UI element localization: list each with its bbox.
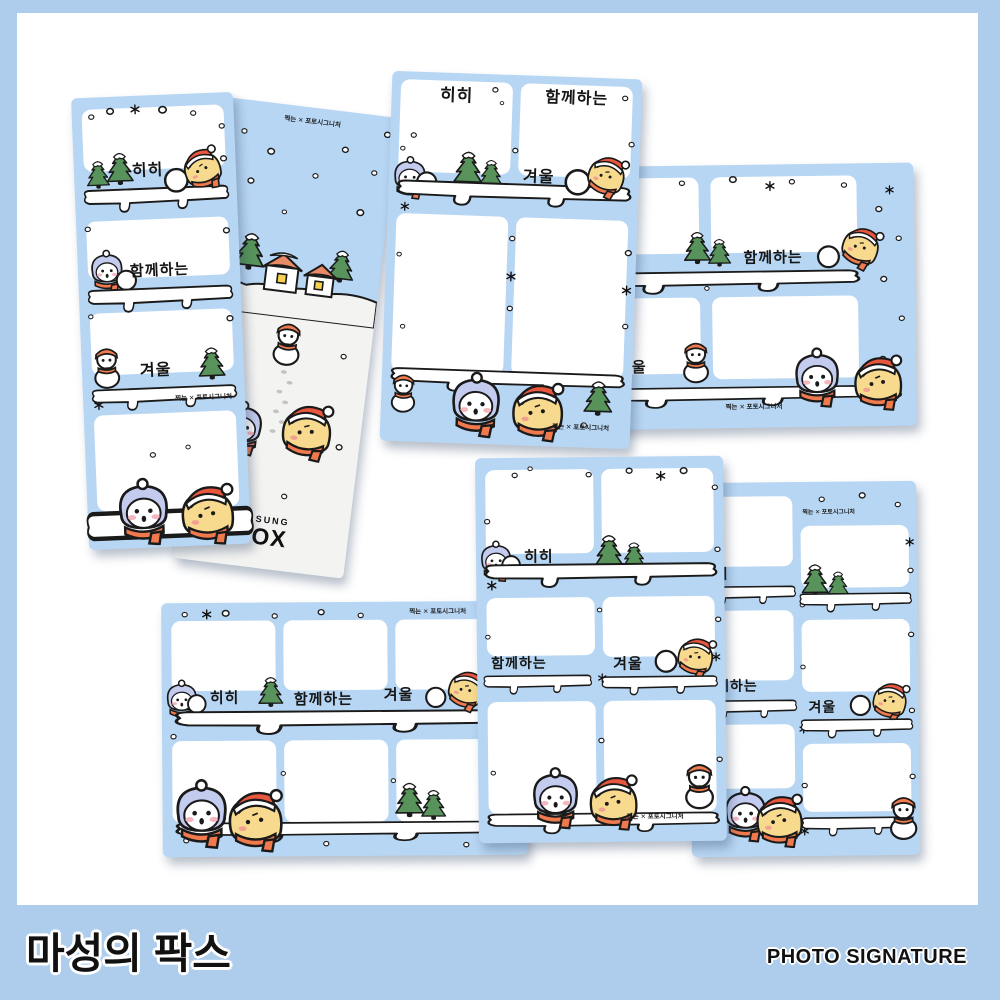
tree-illustration (198, 348, 225, 380)
snow-ledge (484, 675, 592, 694)
frame-card-portrait-6cut: 히히 함께하는 겨울 찍는 ✕ 포토시그니처 (475, 456, 727, 844)
snowflakes (398, 202, 633, 295)
snow-ledge (486, 563, 716, 588)
footer-brand-english: PHOTO SIGNATURE (767, 946, 967, 969)
seal-character (119, 478, 168, 546)
brand-credit-text: 찍는 ✕ 포토시그니처 (726, 404, 783, 411)
snow-ledge (800, 593, 911, 612)
snowball-icon (565, 170, 590, 195)
frame-label-together: 함께하는 (491, 656, 547, 671)
tree-illustration (422, 791, 446, 820)
chick-character (855, 356, 902, 411)
snow-dots (484, 465, 722, 775)
snowman-illustration (94, 349, 119, 389)
frame-label-winter: 겨울 (808, 700, 836, 714)
snow-ledge (391, 368, 624, 397)
brand-credit-text: 찍는 ✕ 포토시그니처 (627, 814, 684, 821)
frame-label-together: 함께하는 (130, 262, 190, 279)
seal-character (796, 348, 838, 407)
snowball-icon (426, 688, 445, 707)
snowman-illustration (684, 343, 708, 382)
chick-character (674, 633, 717, 680)
frame-label-hihi: 히히 (524, 549, 554, 564)
snowball-icon (818, 246, 839, 267)
card-artwork (380, 71, 643, 449)
frame-label-winter: 겨울 (613, 657, 643, 672)
snowball-icon (656, 651, 677, 672)
tree-illustration (708, 239, 730, 266)
snowball-icon (188, 695, 206, 713)
frame-card-landscape-6cut: 히히 함께하는 겨울 찍는 ✕ 포토시그니처 (161, 601, 528, 858)
snowball-icon (851, 696, 870, 715)
card-artwork (161, 601, 528, 858)
seal-character (178, 780, 226, 848)
snow-ledge (177, 821, 513, 843)
brand-credit-text: 찍는 ✕ 포토시그니처 (802, 509, 855, 516)
chick-character (836, 221, 884, 273)
card-artwork (475, 456, 727, 844)
snow-ledge (84, 185, 229, 213)
chick-character (230, 790, 282, 852)
frame-label-winter: 겨울 (384, 688, 414, 703)
frame-label-together: 함께하는 (743, 250, 802, 266)
product-showcase: 찍는 ✕ 포토시그니처 MASUNG FOX (0, 0, 1000, 1000)
footer-brand-korean: 마성의 팍스 (26, 920, 231, 981)
chick-character (869, 678, 910, 723)
frame-label-winter: 겨울 (523, 169, 555, 186)
tree-illustration (259, 678, 283, 707)
snow-ledge (88, 285, 233, 313)
frame-card-vertical-strip: 히히 함께하는 겨울 찍는 ✕ 포토시그니처 (71, 92, 251, 550)
tree-illustration (802, 565, 828, 597)
snow-ledge (602, 676, 717, 695)
frame-label-hihi: 히히 (132, 163, 164, 180)
frame-label-winter: 겨울 (140, 363, 172, 380)
tree-illustration (107, 153, 134, 185)
tree-illustration (396, 783, 424, 817)
snowman-illustration (391, 375, 415, 412)
brand-credit-text: 찍는 ✕ 포토시그니처 (409, 609, 466, 616)
snowman-illustration (686, 765, 713, 809)
snowman-illustration (891, 798, 917, 839)
frame-label-hihi: 히히 (210, 691, 240, 706)
chick-character (591, 775, 638, 830)
frame-label-together: 함께하는 (294, 692, 353, 707)
tree-illustration (87, 161, 110, 189)
snow-ledge (176, 710, 512, 735)
seal-character (534, 768, 577, 829)
snow-ledge (801, 719, 912, 738)
tree-illustration (684, 232, 710, 264)
card-artwork (71, 92, 251, 550)
frame-card-portrait-4cut: 히히 함께하는 겨울 찍는 ✕ 포토시그니처 (380, 71, 643, 449)
snow-dots (799, 492, 915, 787)
chick-character (512, 382, 563, 441)
